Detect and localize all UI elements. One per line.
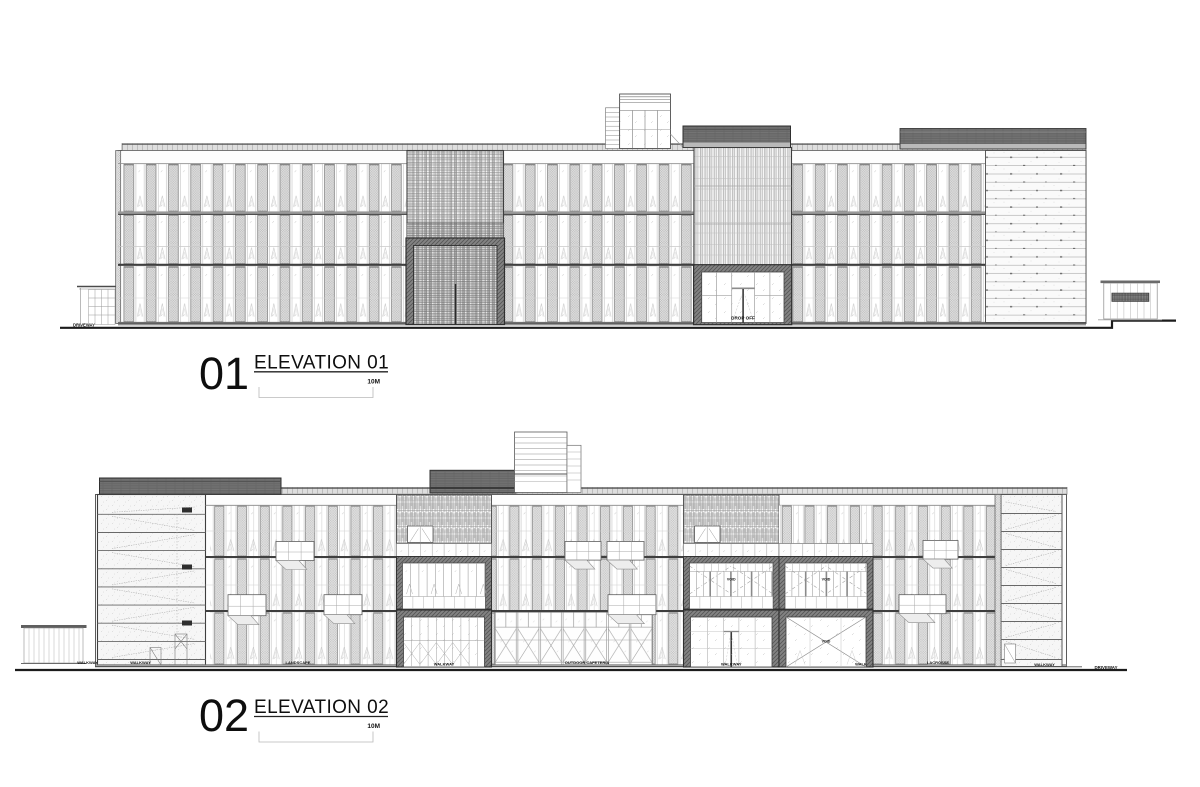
- svg-text:DRIVEWAY: DRIVEWAY: [73, 322, 95, 327]
- svg-text:DRIVEWAY: DRIVEWAY: [1094, 665, 1117, 670]
- svg-text:ELEVATION 02: ELEVATION 02: [254, 697, 389, 718]
- svg-text:VOID: VOID: [727, 578, 736, 582]
- svg-text:OUTDOOR CAFETERIA: OUTDOOR CAFETERIA: [565, 660, 610, 665]
- svg-text:01: 01: [199, 348, 249, 399]
- svg-text:WALK: WALK: [855, 662, 867, 667]
- svg-text:VOID: VOID: [822, 578, 831, 582]
- svg-text:WALKWAY: WALKWAY: [1034, 662, 1055, 667]
- svg-text:LANDSCAPE: LANDSCAPE: [286, 660, 311, 665]
- svg-text:10M: 10M: [367, 378, 380, 385]
- svg-text:02: 02: [199, 690, 249, 741]
- svg-text:LACROSSE: LACROSSE: [927, 660, 950, 665]
- svg-text:10M: 10M: [367, 723, 380, 730]
- svg-text:ELEVATION 01: ELEVATION 01: [254, 353, 389, 374]
- svg-text:WALKWAY: WALKWAY: [434, 662, 455, 667]
- svg-text:WALKWAY: WALKWAY: [721, 662, 742, 667]
- svg-text:WALKWAY: WALKWAY: [130, 660, 151, 665]
- svg-text:DROP OFF: DROP OFF: [731, 316, 755, 321]
- svg-text:WALKWAY: WALKWAY: [77, 660, 98, 665]
